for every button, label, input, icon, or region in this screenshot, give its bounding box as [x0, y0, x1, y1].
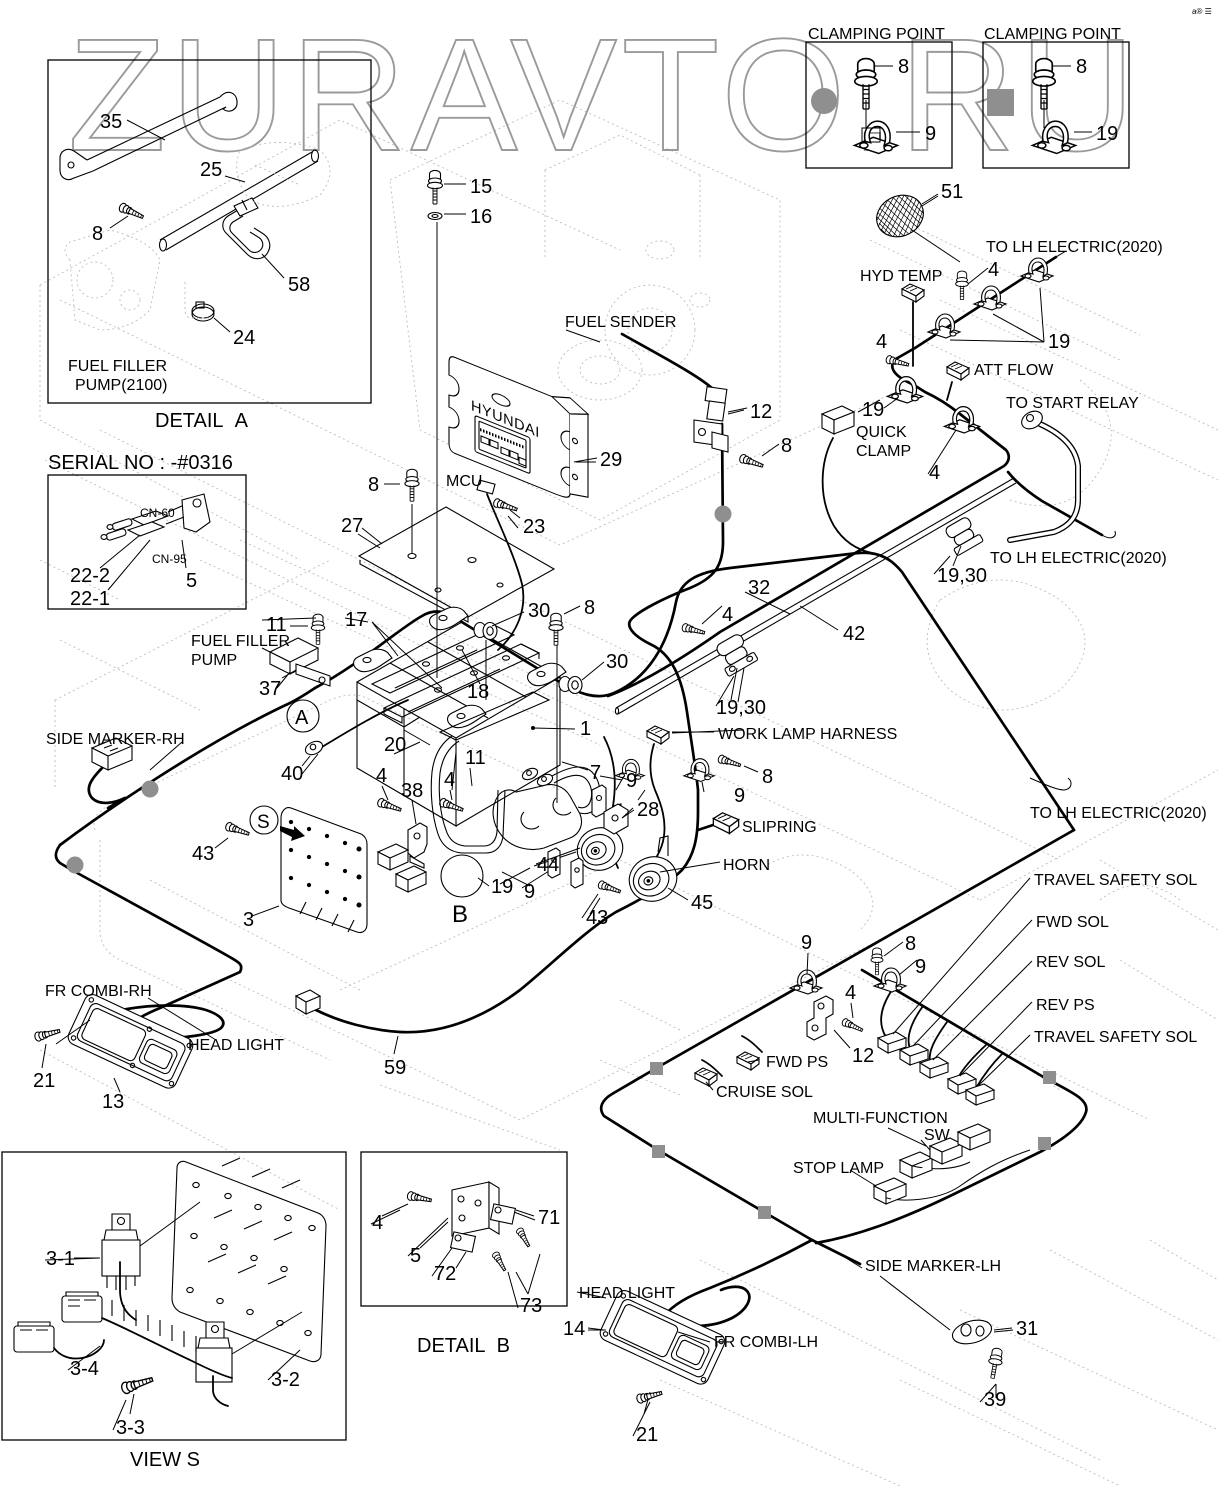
svg-text:24: 24: [233, 327, 255, 349]
svg-text:19: 19: [862, 399, 884, 421]
svg-text:32: 32: [748, 577, 770, 599]
svg-text:HORN: HORN: [723, 857, 770, 874]
svg-text:FWD SOL: FWD SOL: [1036, 914, 1109, 931]
svg-text:MCU: MCU: [446, 473, 482, 490]
svg-text:TO LH ELECTRIC(2020): TO LH ELECTRIC(2020): [1030, 805, 1207, 822]
svg-text:9: 9: [524, 881, 535, 903]
svg-text:21: 21: [33, 1070, 55, 1092]
svg-text:ZURAVTO.RU: ZURAVTO.RU: [68, 5, 1143, 184]
svg-text:51: 51: [941, 181, 963, 203]
svg-text:FUEL SENDER: FUEL SENDER: [565, 314, 676, 331]
svg-text:8: 8: [584, 597, 595, 619]
svg-text:CRUISE SOL: CRUISE SOL: [716, 1084, 813, 1101]
svg-text:35: 35: [100, 111, 122, 133]
svg-text:4: 4: [376, 765, 387, 787]
svg-text:71: 71: [538, 1207, 560, 1229]
svg-text:TRAVEL SAFETY SOL: TRAVEL SAFETY SOL: [1034, 872, 1197, 889]
svg-text:31: 31: [1016, 1318, 1038, 1340]
svg-text:DETAIL A: DETAIL A: [155, 410, 249, 432]
svg-text:TRAVEL SAFETY SOL: TRAVEL SAFETY SOL: [1034, 1029, 1197, 1046]
svg-text:1: 1: [580, 718, 591, 740]
svg-text:8: 8: [905, 933, 916, 955]
svg-text:7: 7: [590, 762, 601, 784]
svg-text:B: B: [452, 901, 468, 928]
svg-text:CN-95: CN-95: [152, 552, 187, 566]
svg-text:8: 8: [92, 223, 103, 245]
svg-text:45: 45: [691, 892, 713, 914]
svg-text:73: 73: [520, 1295, 542, 1317]
svg-text:a® ☰: a® ☰: [1192, 7, 1212, 16]
svg-text:9: 9: [925, 123, 936, 145]
svg-text:8: 8: [898, 56, 909, 78]
svg-text:21: 21: [636, 1424, 658, 1446]
svg-text:SLIPRING: SLIPRING: [742, 819, 817, 836]
svg-text:38: 38: [401, 780, 423, 802]
svg-text:22-1: 22-1: [70, 588, 110, 610]
svg-text:8: 8: [368, 474, 379, 496]
svg-text:20: 20: [384, 734, 406, 756]
svg-text:3-4: 3-4: [70, 1358, 99, 1380]
svg-text:11: 11: [266, 614, 287, 636]
svg-text:16: 16: [470, 206, 492, 228]
svg-text:8: 8: [1076, 56, 1087, 78]
svg-text:SW: SW: [924, 1127, 951, 1144]
svg-text:4: 4: [722, 604, 733, 626]
svg-text:HEAD LIGHT: HEAD LIGHT: [579, 1285, 675, 1302]
svg-text:27: 27: [341, 515, 363, 537]
svg-text:FR COMBI-RH: FR COMBI-RH: [45, 983, 152, 1000]
svg-text:44: 44: [537, 854, 559, 876]
svg-text:22-2: 22-2: [70, 565, 110, 587]
svg-text:9: 9: [626, 770, 637, 792]
svg-text:72: 72: [434, 1263, 456, 1285]
svg-text:TO LH ELECTRIC(2020): TO LH ELECTRIC(2020): [990, 550, 1167, 567]
svg-text:ATT FLOW: ATT FLOW: [974, 362, 1054, 379]
svg-text:30: 30: [528, 600, 550, 622]
svg-text:REV SOL: REV SOL: [1036, 954, 1105, 971]
svg-text:DETAIL B: DETAIL B: [417, 1335, 510, 1357]
svg-text:HEAD LIGHT: HEAD LIGHT: [188, 1037, 284, 1054]
svg-text:4: 4: [988, 259, 999, 281]
svg-text:SERIAL NO : -#0316: SERIAL NO : -#0316: [48, 452, 233, 474]
svg-text:3-2: 3-2: [271, 1369, 300, 1391]
svg-text:CLAMPING POINT: CLAMPING POINT: [984, 26, 1121, 43]
svg-text:43: 43: [192, 843, 214, 865]
svg-text:12: 12: [852, 1045, 874, 1067]
svg-text:14: 14: [563, 1318, 585, 1340]
svg-text:5: 5: [410, 1245, 421, 1267]
svg-text:3-3: 3-3: [116, 1417, 145, 1439]
svg-text:9: 9: [801, 932, 812, 954]
svg-text:23: 23: [523, 516, 545, 538]
svg-text:HYD TEMP: HYD TEMP: [860, 268, 942, 285]
svg-text:PUMP: PUMP: [191, 652, 237, 669]
svg-text:19: 19: [1048, 331, 1070, 353]
svg-text:12: 12: [750, 401, 772, 423]
svg-text:S: S: [257, 812, 270, 833]
svg-text:4: 4: [929, 462, 940, 484]
svg-text:MULTI-FUNCTION: MULTI-FUNCTION: [813, 1110, 948, 1127]
svg-text:CN-60: CN-60: [140, 506, 175, 520]
svg-text:39: 39: [984, 1389, 1006, 1411]
svg-text:13: 13: [102, 1091, 124, 1113]
svg-text:9: 9: [915, 956, 926, 978]
svg-text:18: 18: [467, 681, 489, 703]
svg-text:3: 3: [243, 909, 254, 931]
svg-text:59: 59: [384, 1057, 406, 1079]
svg-text:43: 43: [586, 907, 608, 929]
svg-text:4: 4: [845, 982, 856, 1004]
svg-text:19: 19: [1096, 123, 1118, 145]
svg-text:29: 29: [600, 449, 622, 471]
svg-text:28: 28: [637, 799, 659, 821]
svg-text:19: 19: [491, 876, 513, 898]
svg-text:42: 42: [843, 623, 865, 645]
svg-text:58: 58: [288, 274, 310, 296]
svg-text:VIEW S: VIEW S: [130, 1449, 200, 1471]
svg-text:25: 25: [200, 159, 222, 181]
svg-text:19,30: 19,30: [937, 565, 987, 587]
svg-text:SIDE MARKER-LH: SIDE MARKER-LH: [865, 1258, 1001, 1275]
svg-text:TO LH ELECTRIC(2020): TO LH ELECTRIC(2020): [986, 239, 1163, 256]
svg-text:REV PS: REV PS: [1036, 997, 1095, 1014]
svg-text:4: 4: [372, 1212, 383, 1234]
svg-text:37: 37: [259, 678, 281, 700]
svg-text:CLAMP: CLAMP: [856, 443, 911, 460]
svg-text:11: 11: [465, 747, 486, 769]
svg-text:8: 8: [781, 435, 792, 457]
svg-text:15: 15: [470, 176, 492, 198]
svg-text:STOP LAMP: STOP LAMP: [793, 1160, 884, 1177]
svg-text:PUMP(2100): PUMP(2100): [75, 377, 167, 394]
svg-text:FUEL FILLER: FUEL FILLER: [68, 358, 167, 375]
svg-text:5: 5: [186, 570, 197, 592]
svg-text:SIDE MARKER-RH: SIDE MARKER-RH: [46, 731, 185, 748]
svg-text:A: A: [295, 707, 309, 729]
svg-text:9: 9: [734, 785, 745, 807]
svg-text:TO START RELAY: TO START RELAY: [1006, 395, 1139, 412]
svg-text:17: 17: [345, 609, 367, 631]
svg-text:8: 8: [762, 766, 773, 788]
svg-text:FWD PS: FWD PS: [766, 1054, 828, 1071]
svg-text:FR COMBI-LH: FR COMBI-LH: [714, 1334, 818, 1351]
svg-text:19,30: 19,30: [716, 697, 766, 719]
svg-text:QUICK: QUICK: [856, 424, 907, 441]
svg-text:30: 30: [606, 651, 628, 673]
svg-text:4: 4: [876, 331, 887, 353]
svg-text:40: 40: [281, 763, 303, 785]
svg-text:3-1: 3-1: [46, 1248, 75, 1270]
svg-text:WORK LAMP HARNESS: WORK LAMP HARNESS: [718, 726, 897, 743]
svg-text:CLAMPING POINT: CLAMPING POINT: [808, 26, 945, 43]
svg-text:4: 4: [444, 769, 455, 791]
